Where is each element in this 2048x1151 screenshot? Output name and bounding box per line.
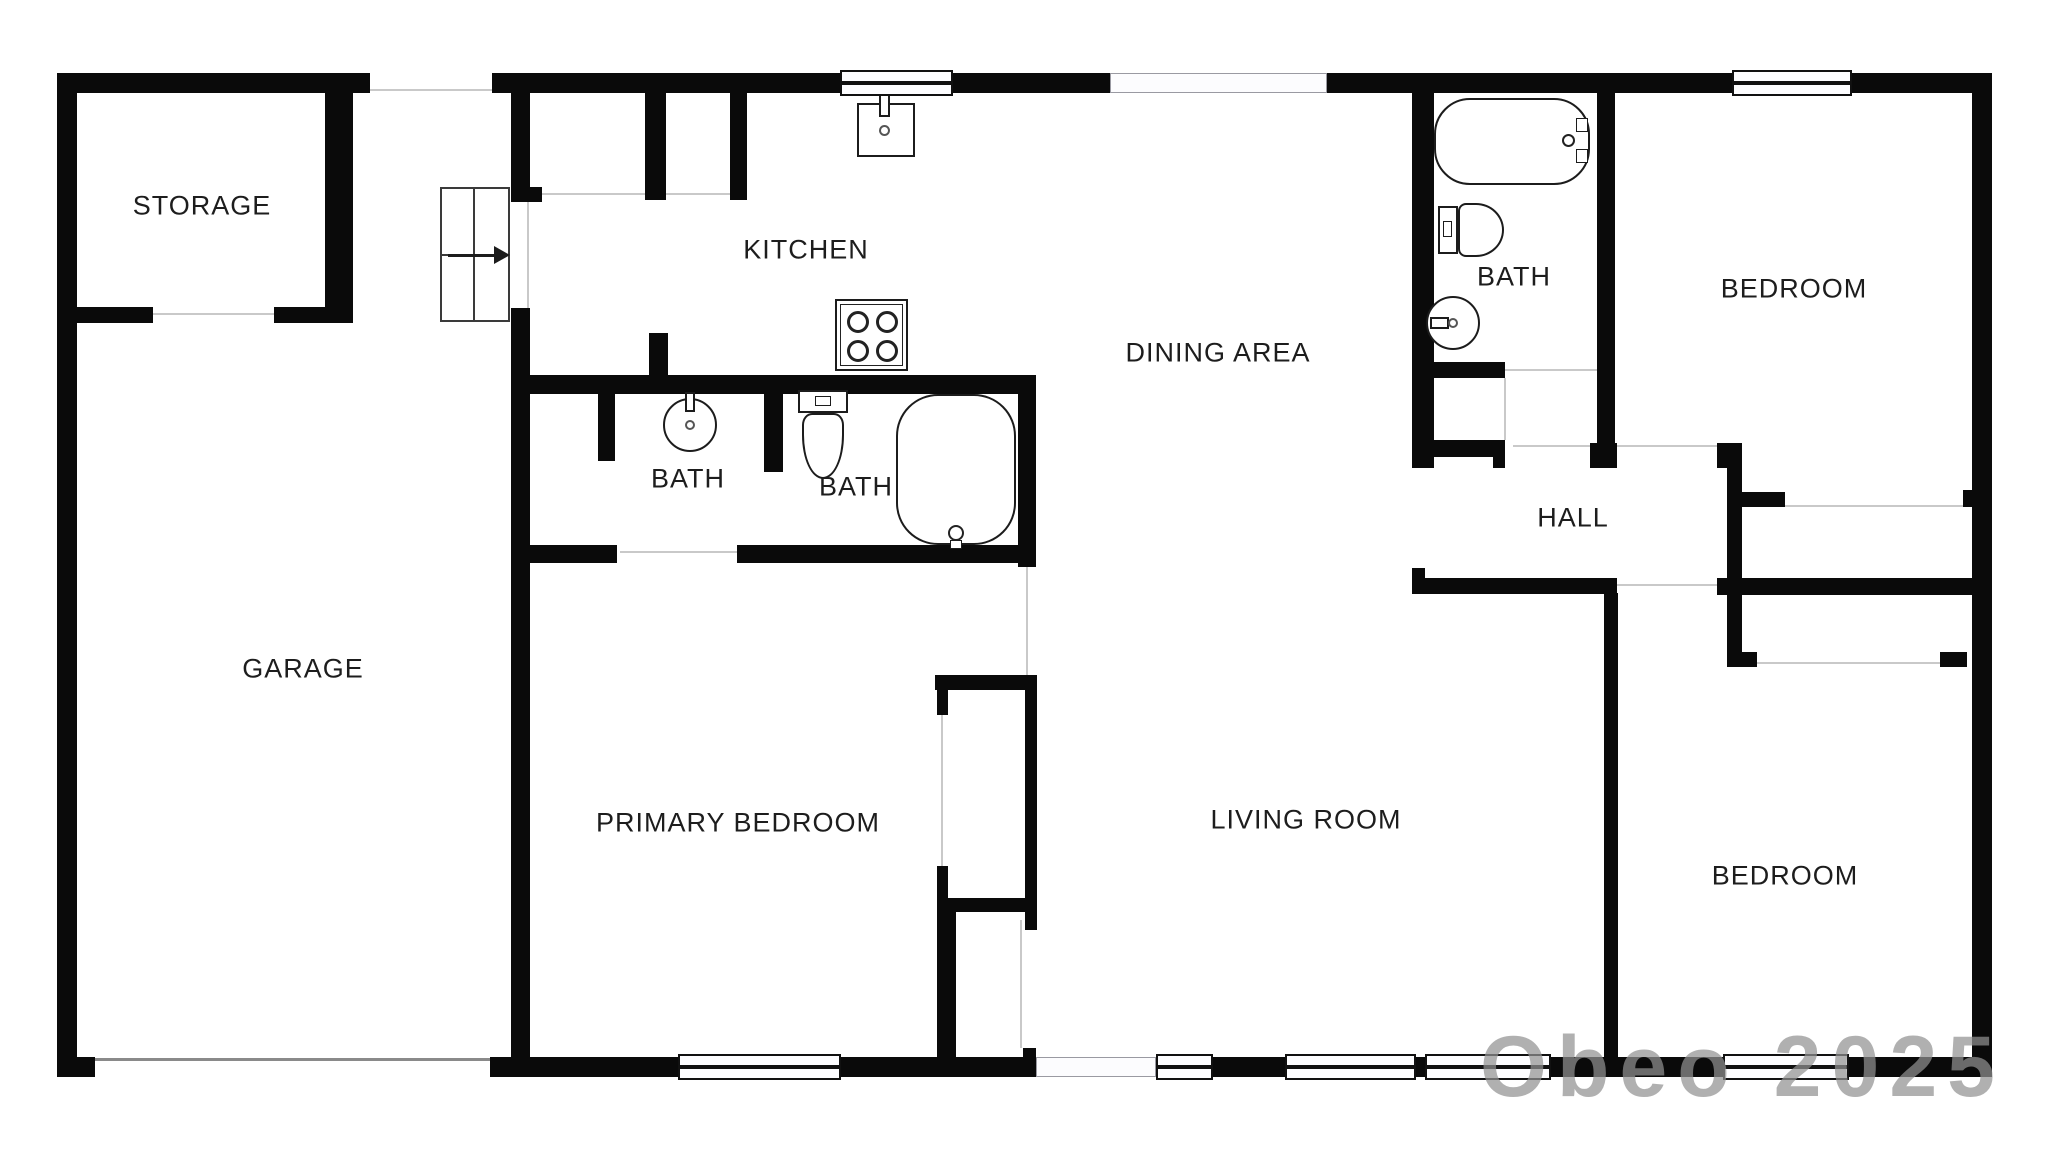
door-opening [1617, 584, 1717, 586]
sink-drain [1448, 318, 1458, 328]
wall [274, 307, 353, 323]
sink-faucet [1430, 317, 1449, 329]
stove [835, 299, 908, 371]
wall [730, 93, 747, 200]
toilet-bowl [802, 413, 844, 479]
closet-door-track [1020, 920, 1022, 1048]
room-label-kitchen: KITCHEN [743, 235, 869, 266]
floor-plan: STORAGE KITCHEN DINING AREA BATH BEDROOM… [0, 0, 2048, 1151]
wall [1023, 1048, 1036, 1077]
window [1156, 1054, 1213, 1080]
wall [841, 1057, 1023, 1077]
wall [1972, 73, 1992, 1077]
bathtub [896, 394, 1016, 545]
door-opening [620, 551, 737, 553]
wall [511, 308, 530, 1057]
wall [1416, 1057, 1425, 1077]
wall [1327, 73, 1732, 93]
room-label-hall: HALL [1537, 503, 1609, 534]
wall [645, 93, 666, 200]
wall [1018, 394, 1036, 567]
wall [737, 545, 1036, 563]
stairs-arrow-shaft [448, 254, 496, 257]
stairs-arrow-right-icon [494, 246, 510, 264]
watermark: Obeo 2025 [1480, 1018, 2000, 1117]
room-label-bath-top-right: BATH [1477, 262, 1551, 293]
wall [1940, 652, 1967, 667]
wall [1412, 578, 1617, 594]
burner-icon [847, 340, 869, 362]
wall [598, 394, 615, 461]
door-opening [153, 313, 274, 315]
closet-door-track [1757, 662, 1940, 664]
wall [1963, 490, 1992, 507]
toilet-flush-button [1443, 221, 1452, 237]
wall [511, 375, 1036, 394]
wall [953, 73, 1110, 93]
burner-icon [876, 311, 898, 333]
room-label-dining-area: DINING AREA [1125, 338, 1310, 369]
bathtub-faucet-stem [950, 540, 962, 549]
window [1285, 1054, 1416, 1080]
closet-door-track [941, 715, 943, 866]
wall [1412, 93, 1434, 468]
kitchen-sink-drain [879, 125, 890, 136]
door-opening [1513, 445, 1590, 447]
sink-drain [685, 420, 695, 430]
room-label-storage: STORAGE [133, 191, 272, 222]
wall [57, 73, 77, 1077]
sliding-door [1110, 73, 1327, 93]
garage-door-opening [95, 1058, 490, 1061]
bathtub-faucet [1562, 134, 1575, 147]
closet-door-track [542, 193, 645, 195]
window [1732, 70, 1852, 96]
wall [1597, 93, 1615, 443]
room-label-primary-bedroom: PRIMARY BEDROOM [596, 808, 880, 839]
wall [764, 394, 783, 472]
wall [511, 545, 617, 563]
toilet-flush-button [815, 396, 831, 406]
room-label-garage: GARAGE [242, 654, 364, 685]
closet-door-track [666, 193, 730, 195]
window [840, 70, 953, 96]
door-opening [1617, 445, 1717, 447]
wall [325, 93, 353, 307]
room-label-bath-middle-2: BATH [819, 472, 893, 503]
wall [1213, 1057, 1285, 1077]
sliding-door [1036, 1057, 1156, 1077]
wall [492, 73, 840, 93]
wall [1434, 440, 1493, 457]
kitchen-sink-faucet [879, 93, 890, 117]
room-label-bedroom-top: BEDROOM [1721, 274, 1868, 305]
wall [937, 912, 956, 1057]
wall [530, 187, 542, 202]
toilet-bowl [1458, 203, 1504, 257]
wall [57, 1057, 95, 1077]
wall [937, 675, 948, 715]
wall [1590, 443, 1617, 468]
wall [1434, 362, 1505, 378]
closet-door-track [1504, 378, 1506, 440]
wall [1852, 73, 1992, 93]
wall [57, 307, 153, 323]
room-label-bedroom-bottom: BEDROOM [1712, 861, 1859, 892]
wall [57, 73, 370, 93]
wall [1727, 492, 1785, 507]
bathtub-faucet-handle [1576, 149, 1588, 163]
wall [1727, 443, 1742, 667]
wall [490, 1057, 678, 1077]
burner-icon [876, 340, 898, 362]
door-opening [370, 89, 492, 91]
wall [1604, 593, 1618, 1057]
window [678, 1054, 841, 1080]
wall [1717, 578, 1992, 595]
door-opening [1505, 369, 1597, 371]
wall [511, 93, 530, 202]
room-label-living-room: LIVING ROOM [1210, 805, 1401, 836]
wall [1493, 440, 1505, 468]
burner-icon [847, 311, 869, 333]
wall [1025, 675, 1037, 930]
bathtub-faucet [948, 525, 964, 541]
door-opening [1026, 567, 1028, 675]
sink-faucet [685, 392, 695, 412]
wall [935, 675, 1037, 690]
bathtub-faucet-handle [1576, 118, 1588, 132]
closet-door-track [1785, 505, 1963, 507]
wall [1727, 652, 1757, 667]
door-opening [527, 202, 529, 308]
wall [947, 898, 1025, 912]
room-label-bath-middle-1: BATH [651, 464, 725, 495]
